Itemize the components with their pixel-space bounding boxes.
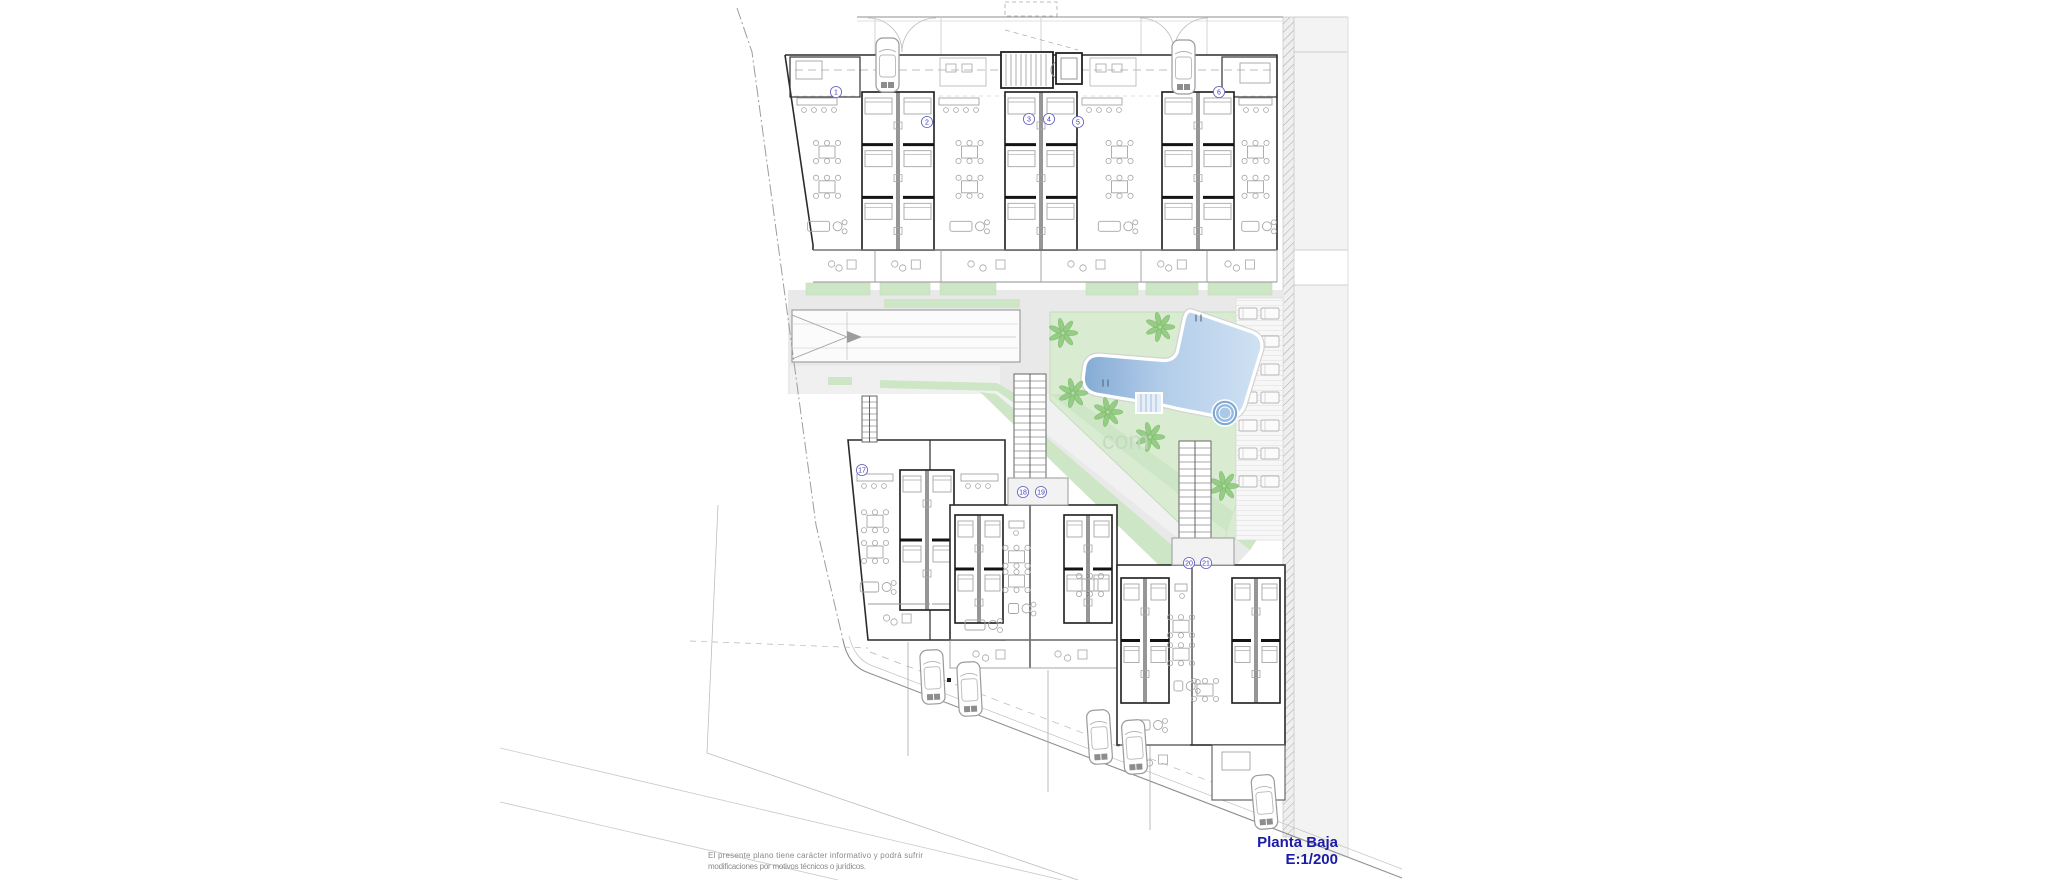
- sunbed: [1261, 476, 1279, 487]
- car: [1121, 719, 1148, 774]
- unit-number-label: 3: [1023, 113, 1034, 124]
- unit-number-label: 18: [1017, 486, 1028, 497]
- top-unit-garden: [880, 283, 930, 295]
- car-rear-detail: [1101, 753, 1107, 759]
- top-unit-garden: [1086, 283, 1138, 295]
- sunbed: [1261, 392, 1279, 403]
- car-rear-detail: [927, 694, 933, 700]
- unit-number-text: 1: [834, 89, 838, 96]
- car-rear-detail: [881, 82, 887, 88]
- unit-number-text: 19: [1037, 489, 1045, 496]
- palm-trunk: [1158, 325, 1162, 329]
- unit-number-text: 6: [1217, 89, 1221, 96]
- car: [876, 38, 899, 92]
- terrace-chair: [1055, 651, 1061, 657]
- neighbor-parcel: [1294, 17, 1348, 857]
- unit-number-text: 17: [858, 467, 866, 474]
- disclaimer-line-2: modificaciones por motivos técnicos o ju…: [708, 862, 866, 871]
- garage-door-arc: [1140, 18, 1174, 52]
- car-rear-detail: [964, 706, 970, 712]
- spa-inner: [1219, 407, 1231, 419]
- unit-number-text: 2: [925, 119, 929, 126]
- unit-number-text: 5: [1076, 119, 1080, 126]
- car-rear-detail: [888, 82, 894, 88]
- unit-number-text: 21: [1202, 560, 1210, 567]
- unit-number-label: 4: [1043, 113, 1054, 124]
- car: [1251, 774, 1279, 830]
- unit-number-label: 17: [856, 464, 867, 475]
- unit-number-text: 18: [1019, 489, 1027, 496]
- top-unit-garden: [1146, 283, 1198, 295]
- unit-number-label: 6: [1213, 86, 1224, 97]
- pool-steps: [1136, 393, 1162, 413]
- car-rear-detail: [1260, 819, 1267, 826]
- boundary-post: [947, 678, 951, 682]
- palm-trunk: [1106, 410, 1110, 414]
- terrace-table: [1159, 755, 1168, 764]
- neighbor-parcel-band: [1283, 17, 1348, 857]
- car-rear-detail: [934, 694, 940, 700]
- car-rear-detail: [1266, 818, 1273, 825]
- neighbor-gap: [1294, 250, 1348, 285]
- car: [1086, 709, 1113, 764]
- unit-number-label: 2: [921, 116, 932, 127]
- car: [957, 661, 983, 716]
- plan-scale-label: E:1/200: [1285, 851, 1338, 868]
- sunbed: [1239, 476, 1257, 487]
- watermark-fragment: com: [1102, 427, 1149, 455]
- car: [1172, 40, 1195, 94]
- green-strip-above-ramp: [884, 299, 1020, 308]
- palm-trunk: [1061, 331, 1065, 335]
- car-rear-detail: [1177, 84, 1183, 90]
- bedroom-core: [1162, 92, 1234, 250]
- top-unit-garden: [806, 283, 870, 295]
- car-rear-detail: [1094, 754, 1100, 760]
- top-apartment-block: [785, 2, 1283, 282]
- unit-number-text: 4: [1047, 116, 1051, 123]
- sunbed: [1239, 308, 1257, 319]
- unit-number-label: 19: [1035, 486, 1046, 497]
- car-rear-detail: [971, 706, 977, 712]
- disclaimer-line-1: El presente plano tiene carácter informa…: [708, 851, 923, 860]
- palm-trunk: [1222, 484, 1226, 488]
- garage-door-arc: [902, 18, 936, 52]
- roof-dashed-diagonal: [1005, 30, 1078, 50]
- sunbed: [1261, 448, 1279, 459]
- unit-number-text: 3: [1027, 116, 1031, 123]
- terrace-chair: [973, 651, 979, 657]
- terrace-chair: [1064, 655, 1070, 661]
- bedroom-core: [862, 92, 934, 250]
- green-strip-entry-a: [828, 377, 852, 385]
- sunbed: [1261, 364, 1279, 375]
- terrace-chair: [982, 655, 988, 661]
- unit-number-label: 5: [1072, 116, 1083, 127]
- stair-tower: [1001, 52, 1053, 88]
- road-line: [500, 748, 1062, 880]
- sunbed: [1239, 420, 1257, 431]
- floor-plan-image: 1234561718192021 com Planta Baja E:1/200…: [0, 0, 2048, 880]
- unit-number-text: 20: [1185, 560, 1193, 567]
- plan-title: Planta Baja: [1257, 834, 1339, 851]
- car-rear-detail: [1129, 764, 1135, 770]
- unit-number-label: 1: [830, 86, 841, 97]
- bedroom-core: [1005, 92, 1077, 250]
- palm-trunk: [1071, 391, 1075, 395]
- unit-number-label: 21: [1200, 557, 1211, 568]
- roof-access-dashed: [1005, 2, 1057, 16]
- terrace-table: [1078, 650, 1087, 659]
- top-unit-garden: [940, 283, 996, 295]
- top-unit-garden: [1208, 283, 1272, 295]
- floor-plan-canvas: 1234561718192021 com Planta Baja E:1/200…: [0, 0, 2048, 880]
- sunbed: [1239, 448, 1257, 459]
- car-rear-detail: [1136, 763, 1142, 769]
- sunbed: [1261, 420, 1279, 431]
- parking-dashed-line: [690, 641, 868, 648]
- sunbed: [1261, 308, 1279, 319]
- terrace-table: [996, 650, 1005, 659]
- car: [920, 649, 946, 704]
- unit-number-label: 20: [1183, 557, 1194, 568]
- car-rear-detail: [1184, 84, 1190, 90]
- vehicle-ramp: [792, 310, 1020, 362]
